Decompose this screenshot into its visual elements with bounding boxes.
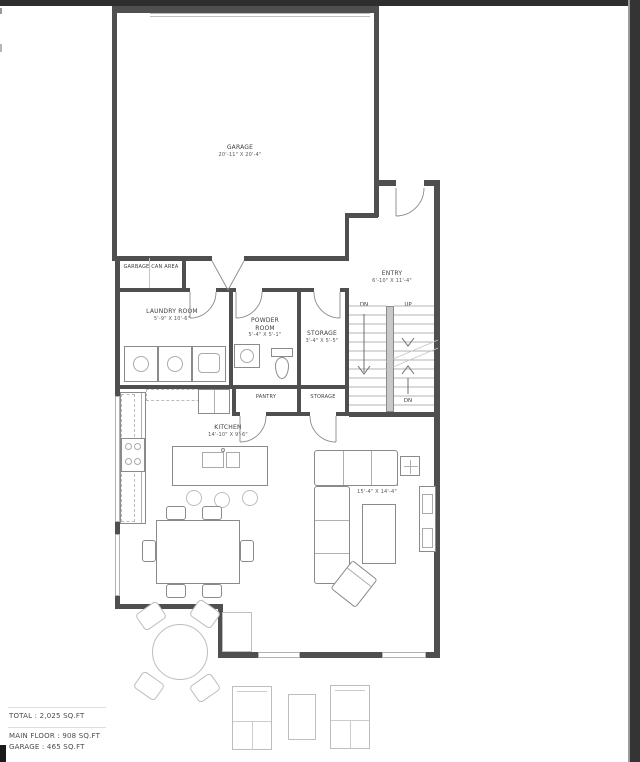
garbage-name: GARBAGE CAN AREA: [123, 264, 178, 270]
tv-media-shelf: [422, 528, 433, 548]
cooktop: [121, 438, 145, 472]
washer-drum: [133, 356, 149, 372]
sofa-cushion-line: [343, 451, 344, 485]
wall-bottom-seg3: [426, 652, 440, 658]
dining-chair: [240, 540, 254, 562]
coffee-table: [362, 504, 396, 564]
wall-closet-south-b: [266, 412, 310, 416]
summary-divider-top: [8, 707, 106, 708]
toilet-bowl: [275, 357, 289, 379]
powder-label: POWDER ROOM 5'-4" X 5'-1": [243, 317, 287, 338]
garage-door-line: [150, 13, 370, 17]
patio-chair: [133, 670, 166, 701]
wall-bottom-seg2: [300, 652, 382, 658]
burner: [134, 443, 141, 450]
island-sink-basin-left: [202, 452, 224, 468]
wall-hall-south-a: [115, 288, 190, 292]
entry-dims: 6'-10" X 11'-4": [361, 278, 423, 284]
side-table-cross: [404, 466, 418, 467]
burner: [125, 458, 132, 465]
scan-artifact-smudge: [0, 8, 2, 14]
laundry-label: LAUNDRY ROOM 5'-9" X 10'-6": [127, 308, 217, 322]
linework-overlay: [0, 0, 640, 762]
wall-garbage-right: [182, 256, 186, 292]
entry-door-swing: [396, 188, 424, 216]
storage-upper-dims: 3'-4" X 5'-5": [300, 338, 344, 344]
lounge-cushion-line: [252, 721, 253, 750]
dining-table: [156, 520, 240, 584]
wall-garage-south-west: [112, 256, 212, 261]
bar-stool: [242, 490, 258, 506]
garbage-area-label: GARBAGE CAN AREA: [123, 264, 179, 270]
storage-upper-label: STORAGE 3'-4" X 5'-5": [300, 330, 344, 344]
laundry-sink-basin: [198, 353, 220, 373]
powder-dims: 5'-4" X 5'-1": [243, 332, 287, 338]
lounge-chair: [232, 686, 272, 750]
wall-left-garage: [112, 6, 117, 261]
stairs-dn-right-label: DN: [398, 398, 418, 404]
patio-door-panel: [222, 612, 252, 652]
storage-upper-name: STORAGE: [307, 330, 337, 337]
sofa-cushion-line: [315, 553, 349, 554]
lounge-cushion-line: [350, 720, 351, 749]
storage-lower-label: STORAGE: [301, 394, 345, 400]
wall-garage-niche-top: [345, 213, 378, 218]
wall-garage-top: [112, 6, 378, 13]
bar-stool: [186, 490, 202, 506]
tv-media-shelf: [422, 494, 433, 514]
wall-hall-south-c: [262, 288, 314, 292]
kitchen-dims: 14'-10" X 9'-6": [193, 432, 263, 438]
stairs-up-label: UP: [398, 302, 418, 308]
sofa-cushion-line: [315, 520, 349, 521]
storage-upper-door-swing: [314, 292, 340, 318]
pantry-label: PANTRY: [238, 394, 294, 400]
wall-bottom-seg1: [222, 652, 258, 658]
fridge-door-split: [214, 390, 215, 413]
entry-name: ENTRY: [382, 270, 402, 277]
wall-right-exterior: [434, 180, 440, 658]
wall-hall-south-b: [216, 288, 236, 292]
garage-label: GARAGE 20'-11" X 20'-4": [190, 144, 290, 158]
dining-chair: [202, 584, 222, 598]
garage-double-door: [212, 261, 244, 290]
window-dining-left: [115, 534, 120, 596]
wall-garage-south-east: [244, 256, 349, 261]
window-bottom-right: [382, 652, 426, 658]
garage-dims: 20'-11" X 20'-4": [190, 152, 290, 158]
stair-stringer: [386, 306, 394, 412]
armchair-back-line: [347, 568, 371, 587]
patio-chair: [189, 672, 222, 703]
scan-artifact-smudge: [0, 44, 2, 52]
lounge-cushion-line: [237, 691, 267, 692]
powder-sink: [240, 349, 254, 363]
dining-chair: [166, 506, 186, 520]
patio-table: [152, 624, 208, 680]
island-faucet: [221, 448, 225, 452]
outdoor-side-table: [288, 694, 316, 740]
burner: [134, 458, 141, 465]
island-sink-basin-right: [226, 452, 240, 468]
wall-front-left-of-door: [374, 180, 396, 186]
wall-left-laundry: [115, 258, 120, 396]
laundry-name: LAUNDRY ROOM: [146, 308, 198, 315]
window-bottom-left: [258, 652, 300, 658]
laundry-dims: 5'-9" X 10'-6": [127, 316, 217, 322]
storage-lower-door-swing: [310, 416, 336, 442]
summary-main-floor: MAIN FLOOR : 908 SQ.FT: [9, 732, 100, 740]
garage-name: GARAGE: [227, 144, 253, 151]
wall-closet-west: [232, 385, 236, 416]
floorplan-page: { "plan": { "rooms": { "garage": { "name…: [0, 0, 640, 762]
powder-name: POWDER ROOM: [251, 317, 279, 332]
sofa-cushion-line: [371, 451, 372, 485]
summary-total: TOTAL : 2,025 SQ.FT: [9, 712, 84, 720]
side-table-cross: [410, 460, 411, 474]
wall-laundry-powder-divider: [229, 288, 233, 388]
scan-artifact-right-strip: [628, 0, 640, 762]
summary-garage: GARAGE : 465 SQ.FT: [9, 743, 85, 751]
lounge-cushion-line: [335, 690, 365, 691]
toilet-tank: [271, 348, 293, 357]
powder-door-swing: [236, 292, 262, 318]
dining-chair: [166, 584, 186, 598]
dining-chair: [202, 506, 222, 520]
dining-chair: [142, 540, 156, 562]
side-table: [400, 456, 420, 476]
kitchen-name: KITCHEN: [214, 424, 241, 431]
dryer-drum: [167, 356, 183, 372]
lounge-chair: [330, 685, 370, 749]
sofa-top-section: [314, 450, 398, 486]
summary-divider-mid: [8, 727, 106, 728]
burner: [125, 443, 132, 450]
entry-label: ENTRY 6'-10" X 11'-4": [361, 270, 423, 284]
kitchen-label: KITCHEN 14'-10" X 9'-6": [193, 424, 263, 438]
stairs-dn-left-label: DN: [354, 302, 374, 308]
wall-garage-niche-side: [345, 213, 349, 261]
garbage-bin-divider: [149, 258, 150, 288]
scan-artifact-corner-mark: [0, 745, 6, 762]
